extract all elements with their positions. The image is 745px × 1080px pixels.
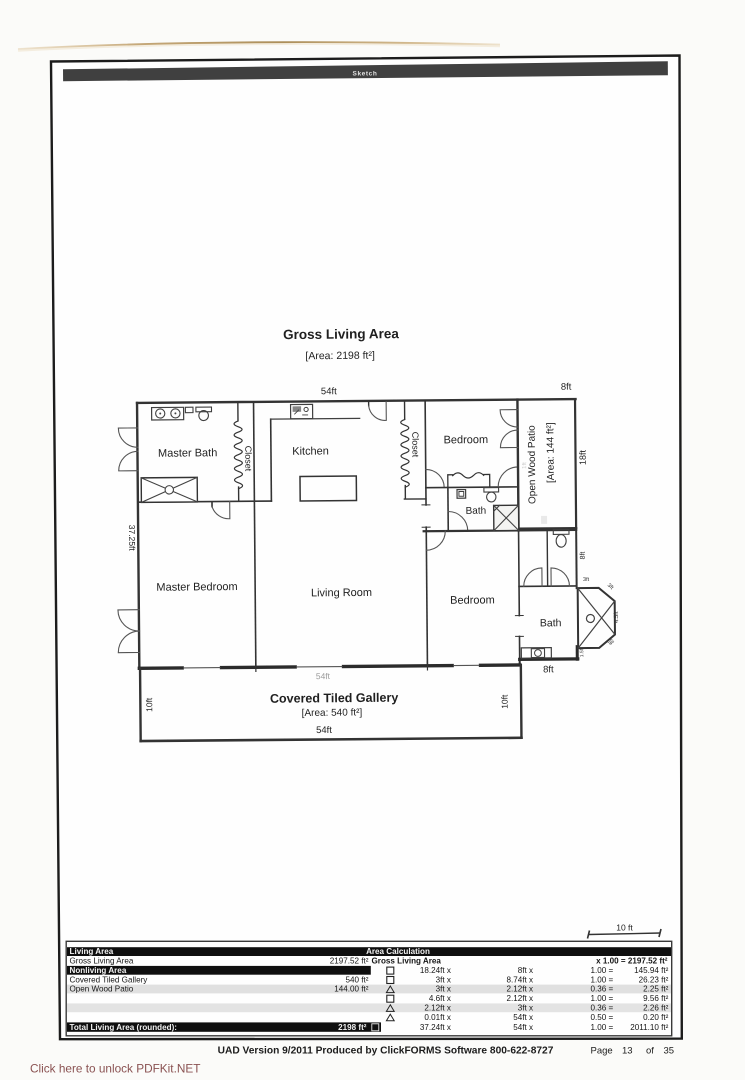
- svg-text:2.12ft x: 2.12ft x: [506, 994, 533, 1003]
- svg-text:Living Room: Living Room: [311, 587, 372, 600]
- svg-text:[Area: 144 ft²]: [Area: 144 ft²]: [545, 422, 557, 483]
- svg-text:3ft x: 3ft x: [518, 1003, 533, 1012]
- svg-text:37.24ft x: 37.24ft x: [420, 1023, 451, 1032]
- svg-text:54ft: 54ft: [316, 725, 332, 736]
- svg-text:Total Living Area (rounded):: Total Living Area (rounded):: [70, 1023, 177, 1032]
- svg-text:Gross Living Area: Gross Living Area: [283, 326, 399, 342]
- svg-text:Bedroom: Bedroom: [450, 594, 495, 606]
- svg-text:Area Calculation: Area Calculation: [366, 947, 430, 956]
- svg-text:Living Area: Living Area: [70, 947, 114, 956]
- svg-text:9.56 ft²: 9.56 ft²: [643, 994, 668, 1003]
- svg-text:1.00 =: 1.00 =: [590, 975, 613, 984]
- svg-text:10 ft: 10 ft: [616, 923, 633, 933]
- svg-text:Master Bath: Master Bath: [158, 447, 217, 460]
- svg-text:0.36 =: 0.36 =: [590, 1003, 613, 1012]
- svg-text:Bath: Bath: [466, 506, 487, 517]
- svg-text:4.6ft x: 4.6ft x: [429, 994, 451, 1003]
- svg-text:3ft x: 3ft x: [436, 985, 451, 994]
- svg-text:of: of: [646, 1046, 654, 1057]
- svg-text:145.94 ft²: 145.94 ft²: [634, 966, 669, 975]
- svg-text:0.36 =: 0.36 =: [590, 985, 613, 994]
- svg-text:Nonliving Area: Nonliving Area: [70, 966, 127, 975]
- svg-text:0.50 =: 0.50 =: [590, 1013, 613, 1022]
- svg-text:54ft: 54ft: [316, 671, 331, 681]
- svg-text:1.5ft: 1.5ft: [579, 647, 585, 657]
- svg-text:Kitchen: Kitchen: [292, 445, 329, 457]
- svg-text:37.25ft: 37.25ft: [127, 525, 137, 552]
- svg-text:[Area: 2198 ft²]: [Area: 2198 ft²]: [305, 350, 375, 363]
- svg-text:Sketch: Sketch: [353, 71, 378, 78]
- svg-text:Open Wood Patio: Open Wood Patio: [70, 985, 134, 994]
- svg-text:Gross Living Area: Gross Living Area: [70, 957, 134, 966]
- svg-text:2.26 ft²: 2.26 ft²: [643, 1003, 668, 1012]
- svg-text:54ft x: 54ft x: [513, 1013, 533, 1022]
- svg-text:Covered Tiled Gallery: Covered Tiled Gallery: [270, 691, 398, 706]
- svg-text:10ft: 10ft: [499, 694, 509, 709]
- svg-text:35: 35: [664, 1046, 675, 1057]
- svg-text:3ft x: 3ft x: [436, 975, 451, 984]
- svg-text:8ft: 8ft: [580, 552, 587, 560]
- svg-text:Open Wood Patio: Open Wood Patio: [527, 425, 539, 504]
- svg-text:1ft: 1ft: [522, 462, 528, 469]
- svg-text:1.00 =: 1.00 =: [590, 1023, 613, 1032]
- svg-text:1.00 =: 1.00 =: [590, 994, 613, 1003]
- svg-text:Gross Living Area: Gross Living Area: [372, 957, 442, 966]
- svg-text:Bedroom: Bedroom: [444, 434, 489, 446]
- svg-text:Covered Tiled Gallery: Covered Tiled Gallery: [70, 975, 149, 984]
- svg-text:0.01ft x: 0.01ft x: [424, 1013, 451, 1022]
- svg-text:2197.52 ft²: 2197.52 ft²: [330, 957, 369, 966]
- svg-text:13: 13: [622, 1046, 633, 1057]
- svg-text:Closet: Closet: [243, 446, 253, 472]
- svg-text:8ft: 8ft: [543, 664, 554, 675]
- svg-text:0.20 ft²: 0.20 ft²: [643, 1013, 668, 1022]
- svg-text:10ft: 10ft: [144, 697, 154, 712]
- svg-text:8.74ft x: 8.74ft x: [506, 975, 533, 984]
- svg-text:Bath: Bath: [540, 617, 562, 629]
- svg-text:54ft: 54ft: [321, 386, 337, 397]
- svg-text:2011.10 ft²: 2011.10 ft²: [630, 1023, 668, 1032]
- svg-text:8ft x: 8ft x: [518, 966, 533, 975]
- svg-text:Click here to unlock PDFKit.NE: Click here to unlock PDFKit.NET: [30, 1062, 200, 1076]
- svg-text:3ft: 3ft: [583, 577, 590, 583]
- svg-text:1.00 =: 1.00 =: [590, 966, 613, 975]
- svg-text:18.24ft x: 18.24ft x: [420, 966, 451, 975]
- svg-text:2.12ft x: 2.12ft x: [506, 985, 533, 994]
- svg-text:2.25 ft²: 2.25 ft²: [643, 985, 668, 994]
- svg-text:UAD Version 9/2011 Produced by: UAD Version 9/2011 Produced by ClickFORM…: [218, 1046, 554, 1057]
- svg-text:18ft: 18ft: [578, 449, 588, 465]
- svg-text:26.23 ft²: 26.23 ft²: [639, 975, 669, 984]
- svg-text:[Area: 540 ft²]: [Area: 540 ft²]: [302, 707, 363, 719]
- svg-text:144.00 ft²: 144.00 ft²: [334, 985, 369, 994]
- svg-text:2.12ft x: 2.12ft x: [424, 1003, 451, 1012]
- svg-text:Closet: Closet: [410, 432, 420, 458]
- svg-text:8ft: 8ft: [561, 382, 572, 393]
- svg-text:x 1.00 = 2197.52 ft²: x 1.00 = 2197.52 ft²: [596, 957, 668, 966]
- svg-text:4.5ft: 4.5ft: [614, 611, 620, 623]
- svg-text:2198 ft²: 2198 ft²: [338, 1023, 367, 1032]
- svg-text:540 ft²: 540 ft²: [346, 975, 369, 984]
- svg-text:Master Bedroom: Master Bedroom: [156, 581, 237, 594]
- svg-text:54ft x: 54ft x: [513, 1023, 533, 1032]
- svg-text:Page: Page: [591, 1046, 613, 1057]
